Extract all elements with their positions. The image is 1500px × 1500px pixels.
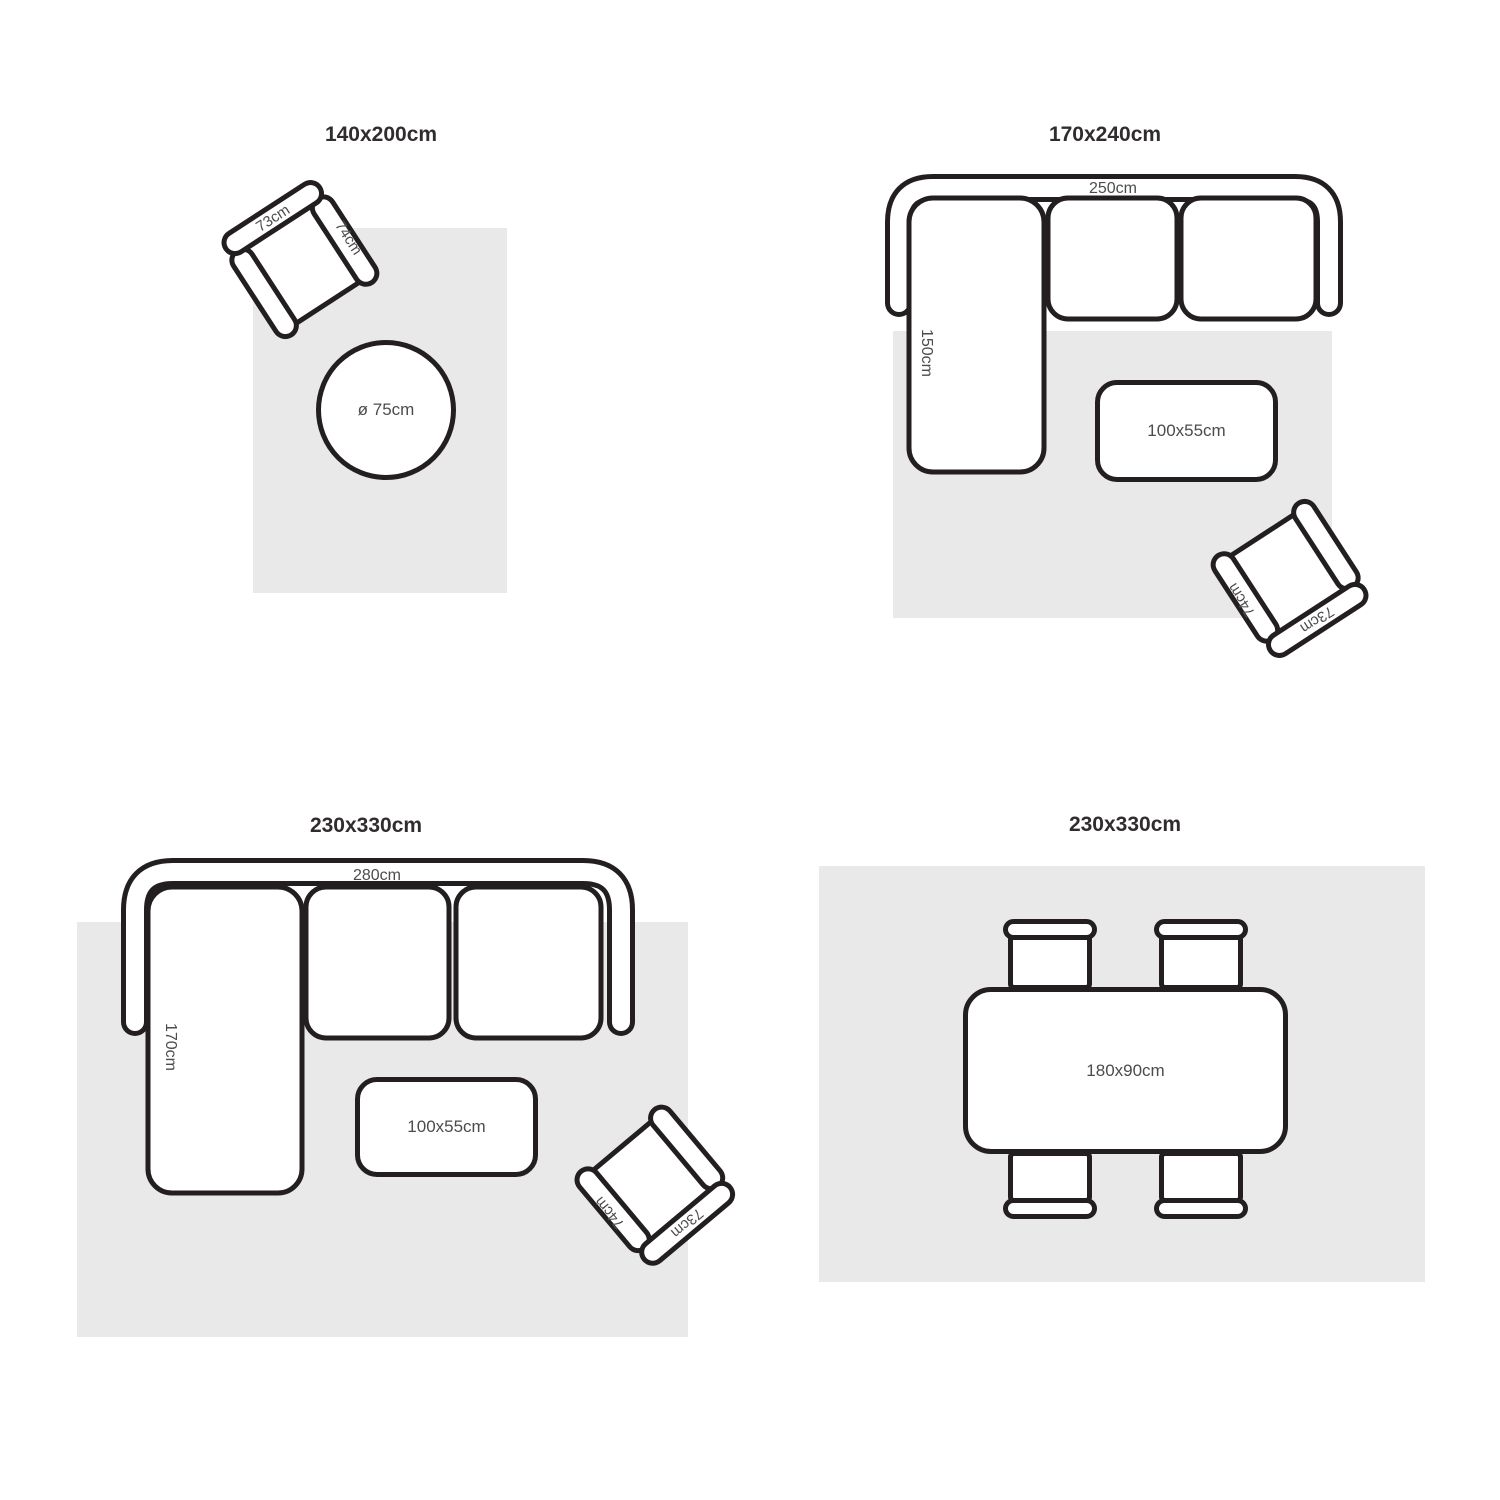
sofa-depth-dimension-label: 170cm xyxy=(162,1023,179,1071)
dining-table-dimension-label: 180x90cm xyxy=(963,987,1288,1154)
rug-size-guide: 140x200cm 73cm 74cm ø 75cm 170x240cm 250… xyxy=(0,0,1500,1500)
dining-chair-seat xyxy=(1008,933,1092,990)
dining-chair-back xyxy=(1154,1198,1248,1219)
sofa-cushion xyxy=(1181,198,1316,319)
dining-chair-back xyxy=(1154,919,1248,940)
sofa-depth-dimension-label: 150cm xyxy=(918,329,935,377)
sofa-width-dimension-label: 250cm xyxy=(1089,180,1137,197)
coffee-table-dimension-label: 100x55cm xyxy=(355,1077,538,1177)
sofa-cushion xyxy=(1048,198,1177,319)
panel4-size-title: 230x330cm xyxy=(1069,813,1181,837)
dining-chair-seat xyxy=(1159,1151,1243,1203)
panel1-size-title: 140x200cm xyxy=(325,123,437,147)
dining-chair-back xyxy=(1003,1198,1097,1219)
dining-chair-seat xyxy=(1159,933,1243,990)
dining-chair-seat xyxy=(1008,1151,1092,1203)
panel2-size-title: 170x240cm xyxy=(1049,123,1161,147)
sofa-cushion xyxy=(456,887,601,1038)
sofa-width-dimension-label: 280cm xyxy=(353,867,401,884)
dining-chair-back xyxy=(1003,919,1097,940)
panel3-size-title: 230x330cm xyxy=(310,814,422,838)
round-table-dimension-label: ø 75cm xyxy=(316,340,456,480)
sofa-cushion xyxy=(306,887,449,1038)
coffee-table-dimension-label: 100x55cm xyxy=(1095,380,1278,482)
